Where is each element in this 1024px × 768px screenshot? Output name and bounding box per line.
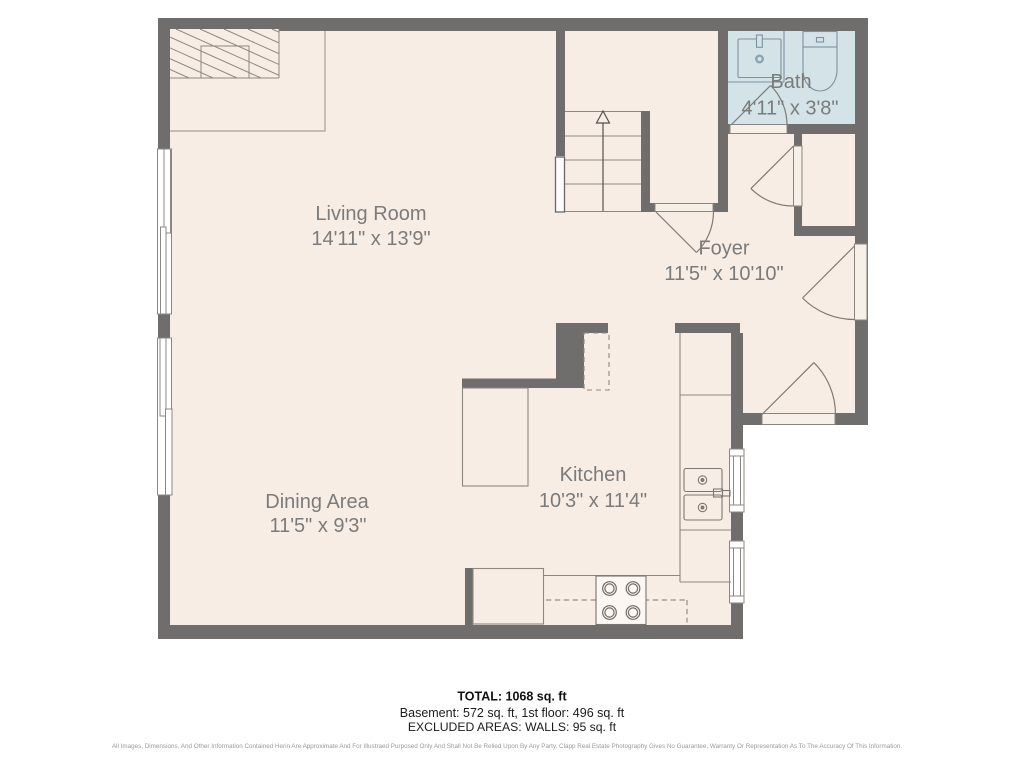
svg-text:EXCLUDED AREAS: WALLS: 95 sq.: EXCLUDED AREAS: WALLS: 95 sq. ft — [408, 720, 617, 734]
svg-text:All Images, Dimensions, And Ot: All Images, Dimensions, And Other Inform… — [112, 743, 903, 750]
svg-text:14'11" x 13'9": 14'11" x 13'9" — [311, 228, 430, 250]
svg-text:4'11" x 3'8": 4'11" x 3'8" — [741, 98, 838, 120]
svg-text:Dining Area: Dining Area — [265, 491, 369, 513]
svg-text:Bath: Bath — [770, 71, 811, 93]
svg-text:Kitchen: Kitchen — [560, 464, 627, 486]
svg-text:11'5" x 10'10": 11'5" x 10'10" — [664, 263, 783, 285]
svg-text:10'3" x 11'4": 10'3" x 11'4" — [539, 490, 647, 512]
svg-text:11'5" x 9'3": 11'5" x 9'3" — [269, 515, 366, 537]
svg-text:Living Room: Living Room — [315, 203, 426, 225]
svg-text:TOTAL: 1068 sq. ft: TOTAL: 1068 sq. ft — [457, 690, 567, 704]
svg-text:Foyer: Foyer — [698, 238, 749, 260]
svg-text:Basement: 572 sq. ft, 1st floo: Basement: 572 sq. ft, 1st floor: 496 sq.… — [400, 706, 625, 720]
